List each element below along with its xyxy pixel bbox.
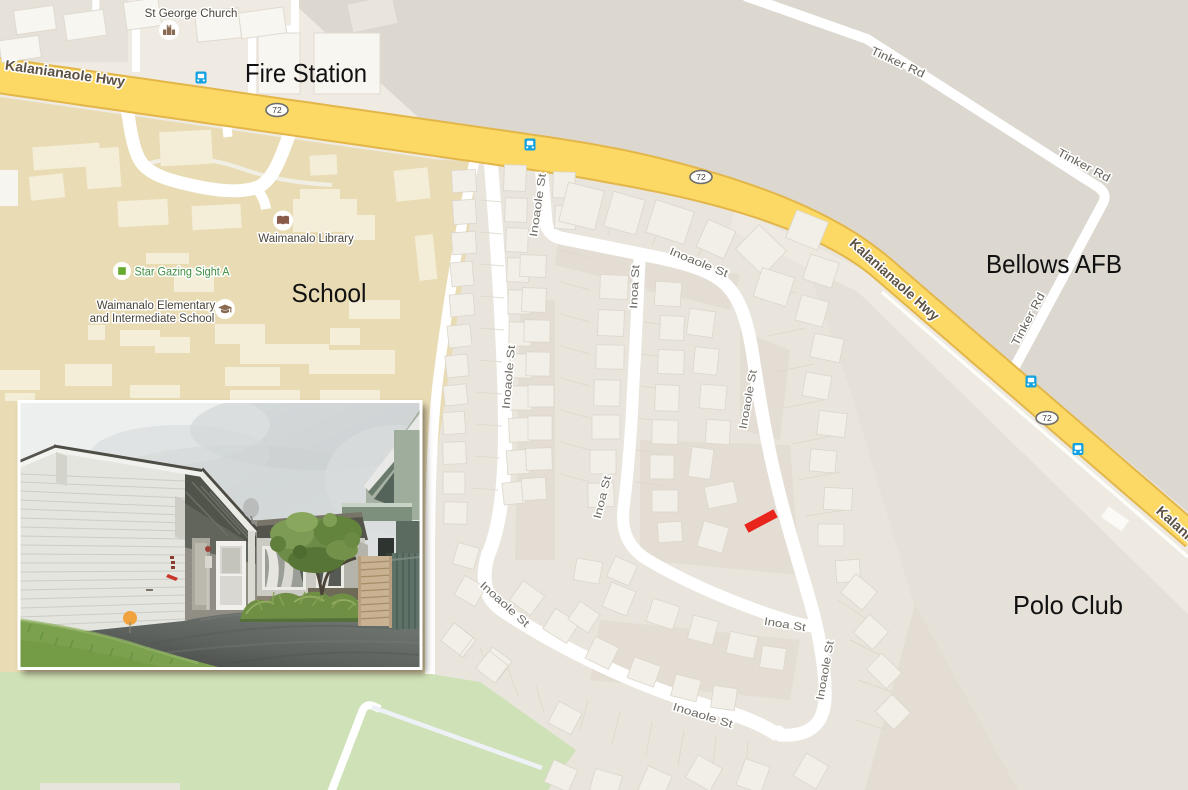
svg-text:and Intermediate School: and Intermediate School	[90, 313, 215, 325]
svg-text:Waimanalo Library: Waimanalo Library	[258, 233, 354, 245]
svg-text:Bellows AFB: Bellows AFB	[986, 249, 1122, 279]
svg-text:Star Gazing Sight A: Star Gazing Sight A	[135, 267, 230, 279]
svg-text:72: 72	[696, 172, 706, 182]
svg-text:St George Church: St George Church	[145, 8, 238, 20]
svg-text:Fire Station: Fire Station	[245, 58, 367, 88]
svg-text:Waimanalo Elementary: Waimanalo Elementary	[97, 300, 216, 312]
svg-text:Polo Club: Polo Club	[1013, 590, 1123, 620]
svg-text:School: School	[292, 278, 367, 308]
svg-text:72: 72	[1042, 413, 1052, 423]
svg-text:Inoa St: Inoa St	[628, 265, 642, 310]
svg-text:72: 72	[272, 105, 282, 115]
